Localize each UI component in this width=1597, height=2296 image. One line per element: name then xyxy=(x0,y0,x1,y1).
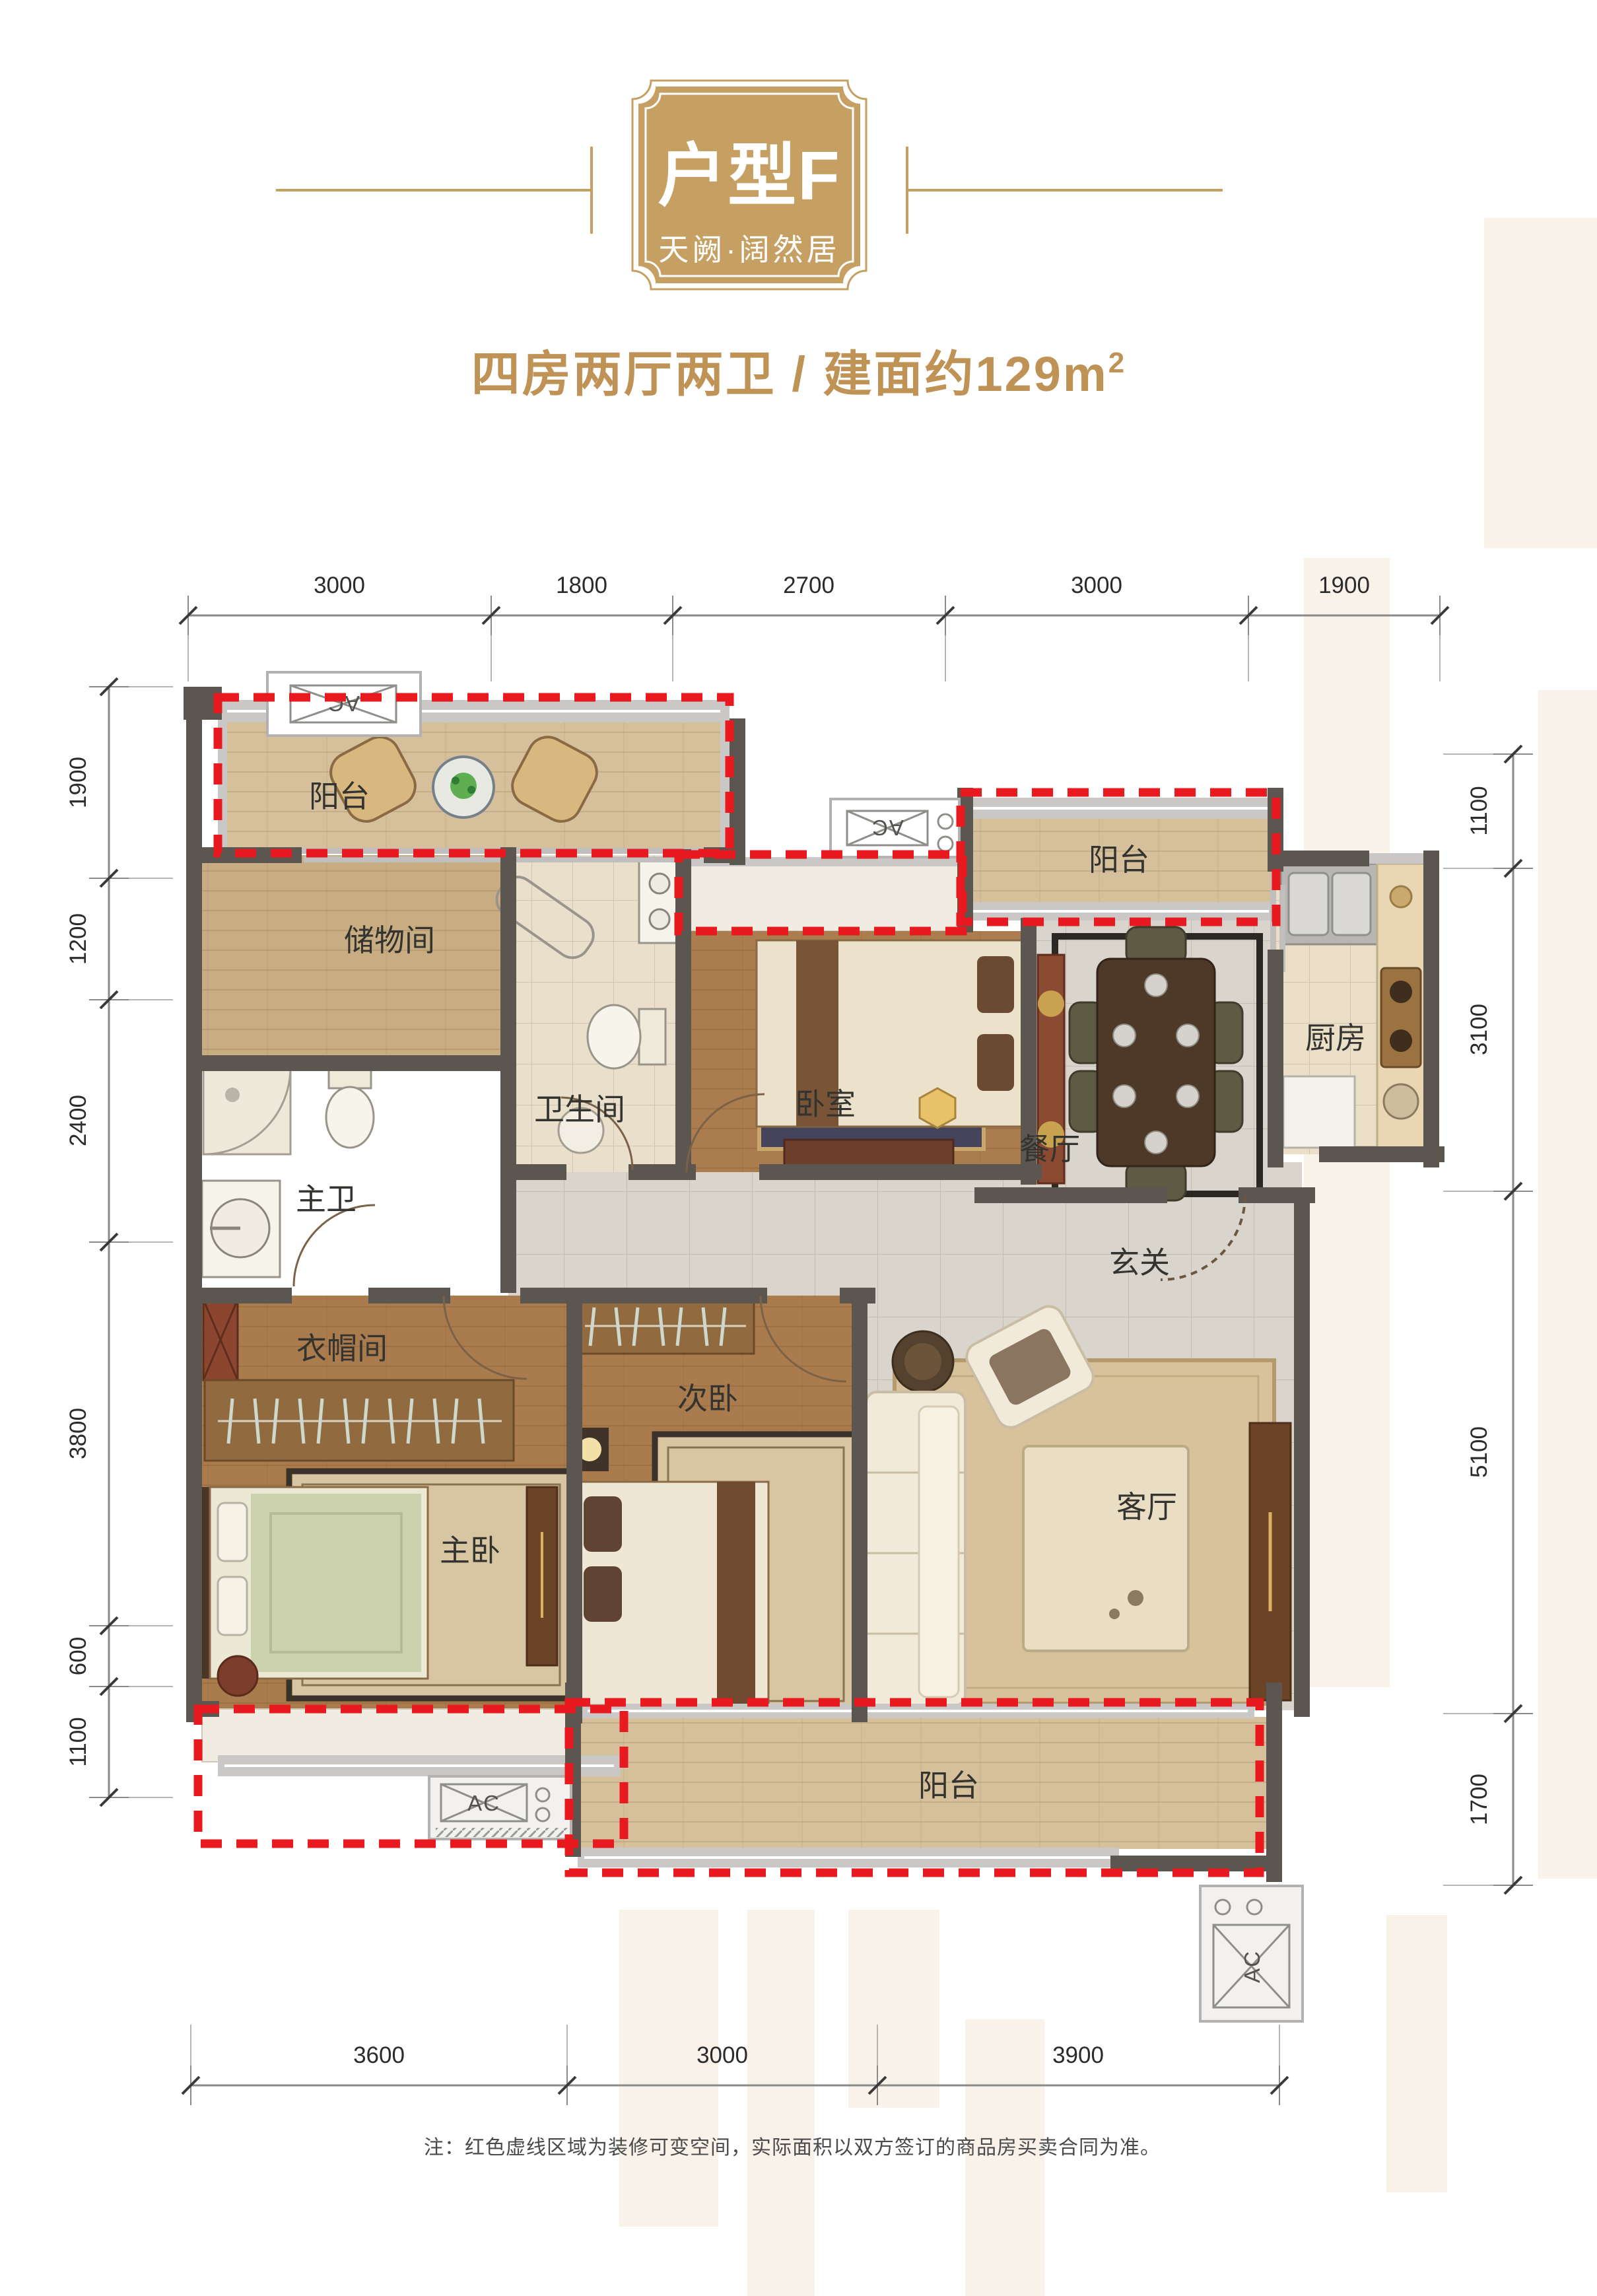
shower-icon xyxy=(225,1088,240,1102)
label-storage: 储物间 xyxy=(344,923,435,957)
svg-text:1800: 1800 xyxy=(556,573,607,598)
living-room-furniture xyxy=(866,1302,1291,1706)
ac-unit-top-right: AC xyxy=(831,799,959,857)
dim-right: 1100 3100 5100 1700 xyxy=(1443,746,1533,1894)
label-master-bedroom: 主卧 xyxy=(440,1533,500,1568)
svg-text:600: 600 xyxy=(65,1637,91,1675)
svg-text:3000: 3000 xyxy=(697,2042,748,2068)
toilet-icon xyxy=(588,1005,640,1068)
svg-text:AC: AC xyxy=(1240,1950,1264,1983)
sink-icon xyxy=(1289,873,1328,935)
svg-text:5100: 5100 xyxy=(1466,1426,1492,1478)
dim-bottom: 3600 3000 3900 xyxy=(182,2025,1288,2105)
floorplan-page: 户型F 天阙·阔然居 四房两厅两卫 / 建面约129m2 xyxy=(0,0,1597,2296)
svg-text:3900: 3900 xyxy=(1052,2042,1104,2068)
ac-unit-bottom-right: AC xyxy=(1200,1886,1303,2021)
ac-unit-top-left: AC xyxy=(267,672,421,736)
svg-text:3600: 3600 xyxy=(353,2042,405,2068)
svg-text:3000: 3000 xyxy=(314,573,365,598)
svg-text:3800: 3800 xyxy=(65,1408,91,1459)
plant-icon xyxy=(450,773,477,799)
svg-text:3000: 3000 xyxy=(1071,573,1122,598)
svg-text:2400: 2400 xyxy=(65,1095,91,1146)
dim-left: 1900 1200 2400 3800 600 1100 xyxy=(65,678,173,1806)
floor-plan: AC AC AC xyxy=(184,672,1437,2021)
svg-text:AC: AC xyxy=(467,1791,500,1815)
coffee-table xyxy=(1023,1446,1188,1651)
dim-top: 3000 1800 2700 3000 1900 xyxy=(180,573,1448,681)
header: 户型F 天阙·阔然居 xyxy=(276,81,1223,289)
bedroom-bay-sill xyxy=(683,865,965,931)
svg-text:1100: 1100 xyxy=(1466,786,1492,835)
master-bay-sill xyxy=(202,1709,619,1762)
svg-text:1200: 1200 xyxy=(65,913,91,965)
svg-text:1900: 1900 xyxy=(1318,573,1370,598)
label-balcony-bottom: 阳台 xyxy=(918,1768,979,1803)
label-balcony-top-right: 阳台 xyxy=(1089,843,1149,877)
label-foyer: 玄关 xyxy=(1109,1245,1170,1280)
label-balcony-top-left: 阳台 xyxy=(309,779,370,814)
subtitle: 四房两厅两卫 / 建面约129m2 xyxy=(471,347,1126,401)
svg-text:1900: 1900 xyxy=(65,757,91,808)
label-kitchen: 厨房 xyxy=(1305,1021,1366,1055)
lamp-icon xyxy=(920,1088,955,1128)
svg-text:AC: AC xyxy=(871,816,904,840)
label-cloakroom: 衣帽间 xyxy=(296,1331,388,1366)
svg-text:3100: 3100 xyxy=(1466,1004,1492,1055)
svg-text:2700: 2700 xyxy=(783,573,834,598)
ac-unit-bottom-left: AC xyxy=(429,1776,571,1839)
label-master-bath: 主卫 xyxy=(296,1182,357,1216)
project-name: 天阙·阔然居 xyxy=(658,232,840,267)
svg-text:1700: 1700 xyxy=(1466,1774,1492,1825)
label-bathroom: 卫生间 xyxy=(534,1092,625,1127)
svg-text:1100: 1100 xyxy=(65,1717,91,1766)
label-bedroom: 卧室 xyxy=(795,1087,856,1121)
master-bath-fixtures xyxy=(202,1064,374,1277)
label-dining: 餐厅 xyxy=(1019,1132,1080,1166)
master-bedroom-furniture xyxy=(202,1471,573,1698)
label-second-bedroom: 次卧 xyxy=(677,1381,738,1416)
unit-title: 户型F xyxy=(658,138,841,215)
floorplan-canvas: 户型F 天阙·阔然居 四房两厅两卫 / 建面约129m2 xyxy=(0,0,1597,2296)
footnote: 注：红色虚线区域为装修可变空间，实际面积以双方签订的商品房买卖合同为准。 xyxy=(424,2137,1161,2159)
label-living-room: 客厅 xyxy=(1116,1490,1177,1524)
